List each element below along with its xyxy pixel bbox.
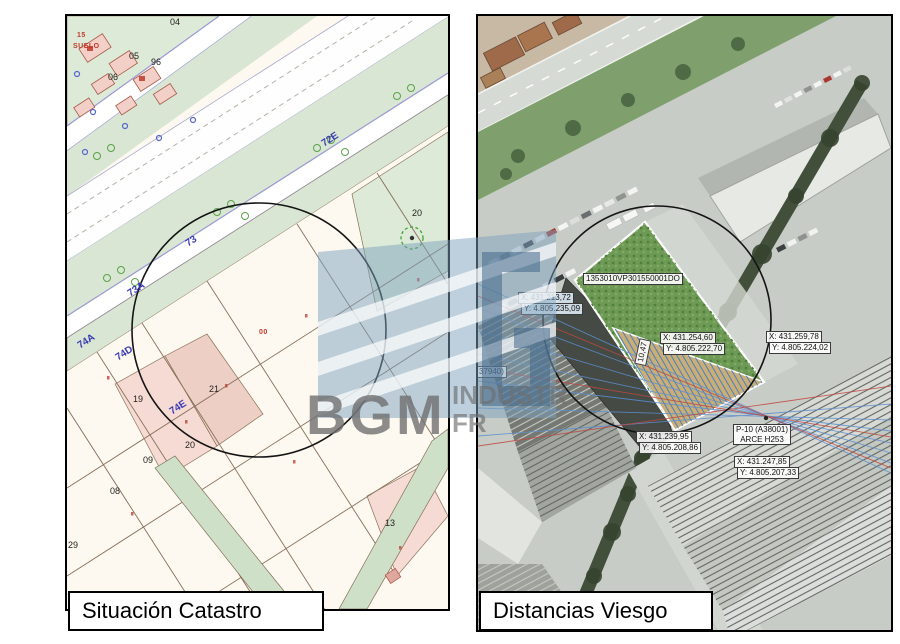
parcel-number-label: 04 xyxy=(170,18,180,27)
coordinate-label: X: 431.239,95Y: 4.805.208,86 xyxy=(636,431,701,454)
coordinate-label: X: 431.213,72Y: 4.805.235,09 xyxy=(518,292,583,315)
parcel-number-label: 06 xyxy=(108,73,118,82)
parcel-number-label: 13 xyxy=(385,519,395,528)
caption-text: Situación Catastro xyxy=(82,598,262,624)
distance-measure-label: 10,47 xyxy=(634,338,652,366)
coordinate-label: X: 431.259,78Y: 4.805.224,02 xyxy=(766,331,831,354)
street-number-label: 73 xyxy=(184,235,199,249)
parcel-number-label: 21 xyxy=(209,385,219,394)
parcel-number-label: 96 xyxy=(151,58,161,67)
map-caption-catastro: Situación Catastro xyxy=(68,591,324,631)
partial-code-label: 37940) xyxy=(476,366,507,378)
parcel-number-label: 20 xyxy=(185,441,195,450)
parcel-number-label: 29 xyxy=(68,541,78,550)
parcel-number-label: 05 xyxy=(129,52,139,61)
street-number-label: 74E xyxy=(168,399,188,417)
street-number-label: 74D xyxy=(114,345,135,363)
parcel-number-label: 19 xyxy=(133,395,143,404)
document-page: 72E7373A74A74D74E04059606202119200908291… xyxy=(0,0,900,644)
coordinate-label: X: 431.254,60Y: 4.805.222,70 xyxy=(660,332,725,355)
red-note-label: SUELO xyxy=(73,43,100,50)
viesgo-map-panel: X: 431.213,72Y: 4.805.235,09X: 431.254,6… xyxy=(476,14,893,632)
cadastral-labels-layer: 72E7373A74A74D74E04059606202119200908291… xyxy=(67,16,448,609)
parcel-number-label: 08 xyxy=(110,487,120,496)
coordinate-label: X: 431.247,85Y: 4.805.207,33 xyxy=(734,456,799,479)
street-number-label: 72E xyxy=(320,131,340,149)
parcel-number-label: 20 xyxy=(412,209,422,218)
map-caption-viesgo: Distancias Viesgo xyxy=(479,591,713,631)
catastro-map-panel: 72E7373A74A74D74E04059606202119200908291… xyxy=(65,14,450,611)
cadastral-reference-label: 1353010VP301550001DO xyxy=(583,273,683,285)
pole-id-label: P-10 (A38001)ARCE H253 xyxy=(733,424,791,445)
caption-text: Distancias Viesgo xyxy=(493,598,667,624)
red-note-label: 00 xyxy=(259,329,268,336)
street-number-label: 74A xyxy=(76,333,97,351)
street-number-label: 73A xyxy=(126,281,147,299)
red-note-label: 15 xyxy=(77,32,86,39)
aerial-labels-layer: X: 431.213,72Y: 4.805.235,09X: 431.254,6… xyxy=(478,16,891,630)
parcel-number-label: 09 xyxy=(143,456,153,465)
